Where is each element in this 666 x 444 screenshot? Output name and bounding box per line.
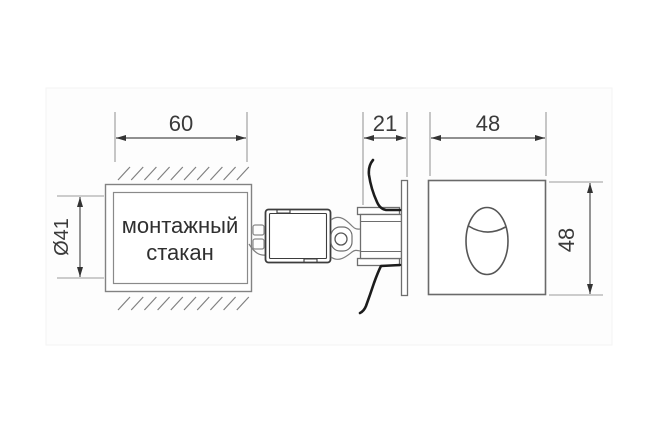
cup-outer-wall [106, 185, 252, 292]
bezel-plate [402, 181, 408, 296]
cup-label-line1: монтажный [122, 213, 239, 238]
lens-opening [466, 208, 508, 275]
driver-box [266, 210, 331, 263]
dim-cup-diameter-label: Ø41 [51, 218, 73, 256]
technical-drawing: 60 Ø41 21 48 48 [0, 0, 666, 444]
drawing-canvas: 60 Ø41 21 48 48 [0, 0, 666, 444]
dim-face-height-label: 48 [554, 228, 579, 252]
dim-cup-width-label: 60 [169, 111, 193, 136]
dim-face-width-label: 48 [476, 111, 500, 136]
fixture-front-view [429, 181, 546, 295]
mounting-cup: монтажный стакан [106, 185, 252, 292]
lug-hole [335, 233, 347, 245]
dim-fixture-depth-label: 21 [373, 111, 397, 136]
cup-label-line2: стакан [146, 240, 214, 265]
